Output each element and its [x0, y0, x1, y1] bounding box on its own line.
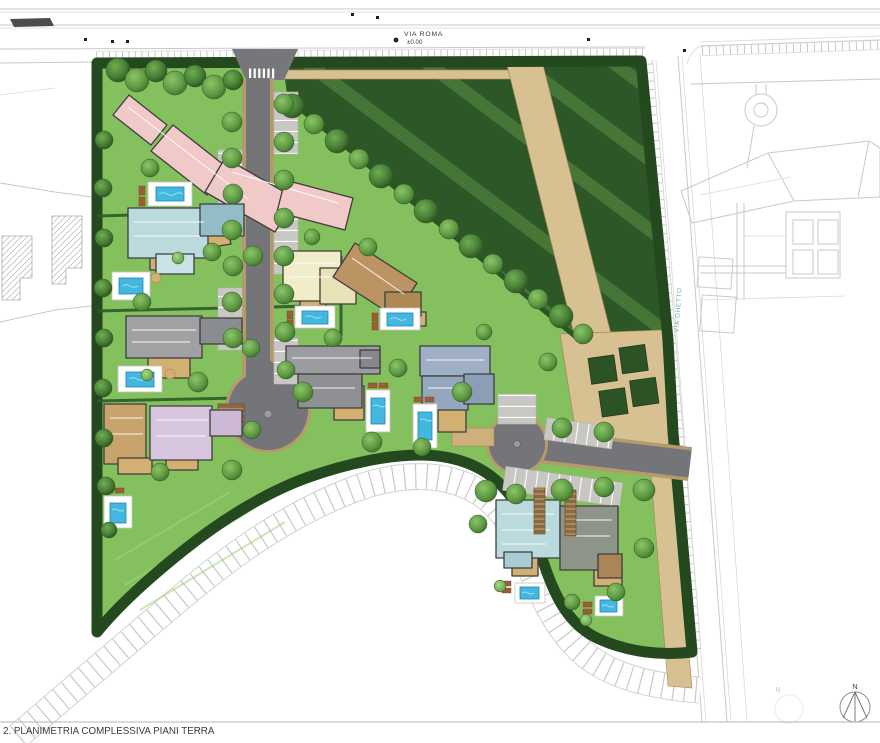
context-top-right [681, 79, 880, 300]
north-compass: N N [775, 682, 870, 723]
via-roma-label: VIA ROMA [404, 31, 443, 38]
title-block: 2. PLANIMETRIA COMPLESSIVA PIANI TERRA [0, 722, 880, 737]
existing-building-hatched [2, 236, 32, 300]
existing-building-hatched [52, 216, 82, 284]
road-median-strip [10, 18, 54, 27]
compass-arrow-icon [843, 692, 867, 722]
north-label: N [852, 682, 857, 691]
ghost-circle [775, 695, 803, 723]
pool [502, 581, 545, 603]
path-top [283, 70, 541, 79]
drawing-title: 2. PLANIMETRIA COMPLESSIVA PIANI TERRA [3, 726, 215, 737]
sidewalk-hatch-top-right [702, 45, 880, 51]
site-plan-canvas: VIA ROMA ±0.00 VIA GHETTO N N 2. PLANIME… [0, 0, 880, 743]
site-plan-sheet: VIA ROMA ±0.00 VIA GHETTO N N 2. PLANIME… [0, 0, 880, 743]
pool [366, 383, 390, 432]
context-left [0, 88, 92, 322]
north-label-secondary: N [775, 687, 780, 694]
pergola-walk [534, 488, 545, 534]
via-roma-elevation: ±0.00 [407, 39, 423, 46]
benchmark-icon [394, 38, 399, 43]
via-ghetto-label: VIA GHETTO [673, 287, 683, 333]
paved-court [498, 394, 536, 424]
